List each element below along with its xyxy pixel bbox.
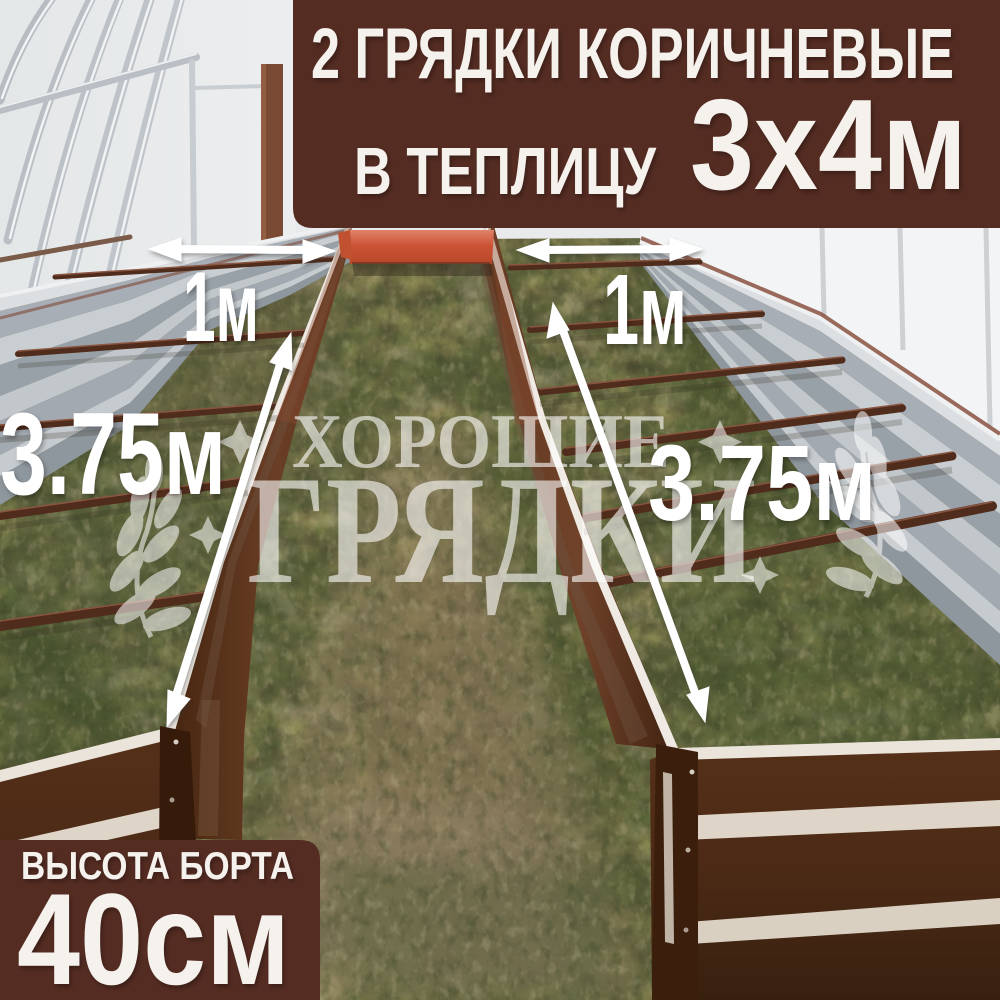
svg-text:3х4м: 3х4м	[690, 73, 967, 217]
svg-text:3.75м: 3.75м	[0, 388, 226, 519]
svg-text:1м: 1м	[183, 251, 259, 362]
svg-text:3.75м: 3.75м	[648, 422, 876, 543]
svg-text:1м: 1м	[603, 254, 687, 366]
svg-text:40см: 40см	[17, 866, 290, 1000]
svg-text:В ТЕПЛИЦУ: В ТЕПЛИЦУ	[354, 134, 657, 209]
